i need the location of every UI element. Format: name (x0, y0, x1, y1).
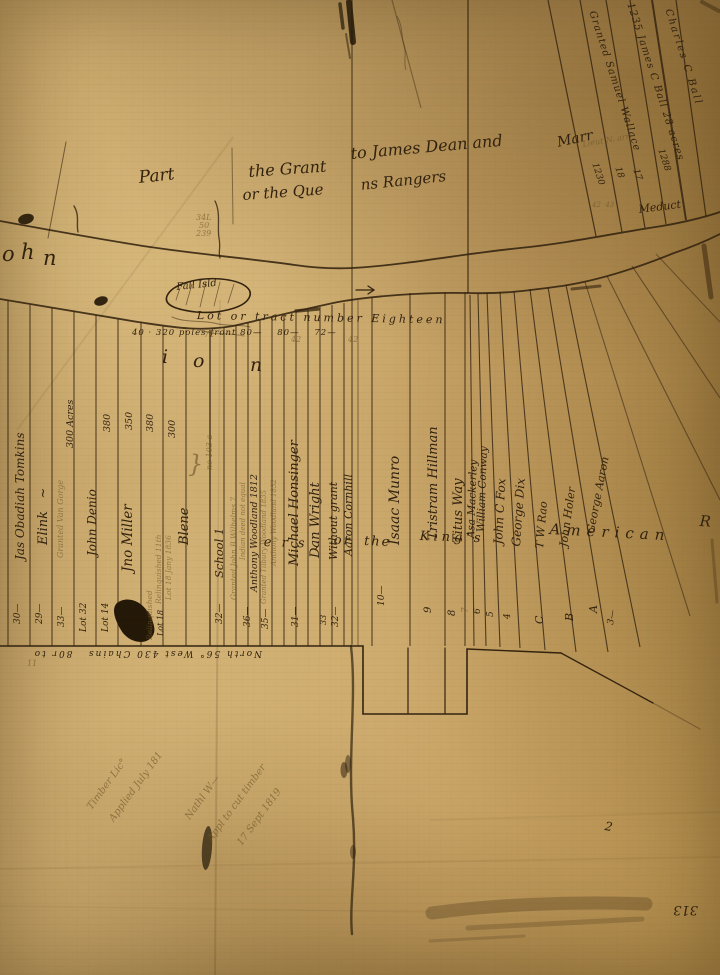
lot-bottom-29: 29— (36, 604, 45, 624)
lot-acreage-350: 350 (125, 412, 135, 430)
bearing-text: North 56° West 430 Chains 80r to (33, 648, 262, 657)
grant-title-ns-rangers: ns Rangers (360, 169, 447, 193)
lot-name-george-dix: George Dix (510, 478, 527, 547)
regiment-text-r: R (699, 514, 711, 530)
lot-acreage-300b: 300 (168, 420, 178, 438)
note-239: 239 (196, 230, 211, 238)
lot-note-granted-wilhelms: Granted John B Wilhelms 7 (230, 497, 238, 600)
lot-name-john-c-fox: John C Fox (492, 478, 507, 545)
lot-bottom-36: 36— (244, 607, 253, 627)
lot-number-18: 18 (612, 166, 624, 180)
lot-bottom-5: 5 (487, 611, 496, 617)
grant-title-the-grant: the Grant (248, 159, 327, 180)
lot-bottom-lot32: Lot 32 (80, 603, 89, 632)
large-letter-o: o (193, 352, 204, 371)
page-number-313: 313 (673, 903, 698, 916)
lot-bottom-9: 9 (424, 607, 434, 613)
lot-name-michael-honsinger: Michael Honsinger (288, 440, 301, 566)
lot-bottom-35: 35— (262, 609, 271, 629)
width-42a: 42 (291, 336, 301, 344)
lot-bottom-4: 4 (504, 613, 513, 619)
lot-note-anthony-woodland-2: Anthony Woodland 1832 (271, 479, 278, 566)
lot-bottom-30: 30— (14, 604, 23, 624)
lot-number-1230: 1230 (589, 162, 605, 187)
mark-2: 2 (604, 820, 614, 833)
lot-bottom-6: 6 (474, 608, 483, 614)
large-letter-i: i (162, 348, 168, 367)
lot-bottom-lot14: Lot 14 (102, 603, 111, 632)
fall-island-label: Fall Isld (176, 279, 217, 293)
lot-name-aaron-cornhill: Aaron Cornhill (343, 474, 354, 556)
lot-name-school-1: School 1 (214, 528, 226, 578)
lot-note-indian-deed: Indian deed not equal (240, 482, 247, 560)
lot-name-blene: Blene (178, 508, 191, 545)
note-42-43: 42 43 (592, 202, 614, 209)
lot-bottom-3: 3— (607, 609, 618, 625)
note-lot18-jany: Lot 18 Jany 1836 (165, 535, 173, 600)
lot-name-t-w-rao: T W Rao (534, 501, 549, 549)
tract-subheader: 40 · 320 poles front 80— 80— 72— (132, 329, 337, 338)
lot-name-without-grant: Without grant (328, 482, 339, 560)
lot-bottom-32b: 32— (332, 607, 341, 627)
tract-header: Lot or tract number Eighteen (197, 310, 446, 325)
lot-bottom-a: A (588, 605, 599, 613)
label-layer: Partthe Grantto James Dean andMarror the… (0, 0, 720, 975)
lot-bottom-8: 8 (448, 610, 458, 616)
lot-name-elink: Elink ~ (37, 488, 50, 545)
width-72: 72 (204, 331, 214, 339)
note-nathl-w: Nathl W— (184, 774, 223, 822)
lot-label-charles-c-ball: Charles C Ball (662, 8, 703, 107)
tick-marks: 11 (27, 660, 37, 668)
lot-bottom-31: 31— (292, 607, 301, 627)
lot-bottom-lot18: Lot 18 (157, 610, 165, 636)
lot-acreage-380b: 380 (146, 414, 156, 432)
lot-name-titus-way: Titus Way (452, 478, 465, 543)
lot-name-anthony-woodland: Anthony Woodland 1812 (250, 474, 260, 592)
note-relinquished-11th: Relinquished 11th (155, 535, 163, 604)
lot-name-dan-wright: Dan Wright (309, 482, 322, 558)
lot-name-isaac-munro: Isaac Munro (388, 456, 402, 545)
grant-title-james-dean: to James Dean and (350, 133, 503, 162)
river-name-n: n (43, 248, 57, 269)
note-no-103a: no 103 a (206, 435, 214, 470)
lot-acreage-300-acres: 300 Acres (66, 400, 76, 448)
lot-note-granted-woodland: Granted Tilbury Woodland 1835 (261, 490, 268, 604)
grant-title-or-the-que: or the Que (242, 182, 324, 203)
width-42b: 42 (348, 336, 358, 344)
river-name-h: h (21, 242, 35, 263)
lot-name-william-conway: William Conway (476, 446, 489, 532)
map-scan: Partthe Grantto James Dean andMarror the… (0, 0, 720, 975)
lot-name-jno-miller: Jno Miller (122, 504, 136, 572)
lot-bottom-b: B (564, 613, 575, 621)
lot-name-tristram-hillman: Tristram Hillman (427, 426, 440, 540)
lot-number-17: 17 (630, 168, 642, 182)
large-letter-n: n (250, 356, 262, 375)
grant-title-part: Part (138, 166, 175, 187)
lot-bottom-33: 33— (58, 607, 67, 627)
lot-number-1288: 1288 (655, 148, 671, 173)
lot-bottom-32a: 32— (216, 604, 225, 624)
lot-name-john-denio: John Denio (86, 489, 98, 556)
lot-bottom-relinquished: Relinquished (146, 590, 154, 640)
river-name-o: o (2, 244, 15, 265)
meduct-river-label: Meduct (638, 199, 682, 215)
brace: } (188, 452, 203, 476)
lot-acreage-380a: 380 (103, 414, 113, 432)
lot-name-granted-van-gorge: Granted Van Gorge (57, 480, 65, 558)
lot-bottom-c: C (534, 616, 545, 624)
lot-bottom-33b: 33 (320, 615, 328, 625)
lot-bottom-10: 10— (378, 586, 387, 606)
lot-bottom-7: 7 (462, 607, 471, 613)
lot-name-obadiah-tomkins: Jas Obadiah Tomkins (14, 433, 26, 561)
